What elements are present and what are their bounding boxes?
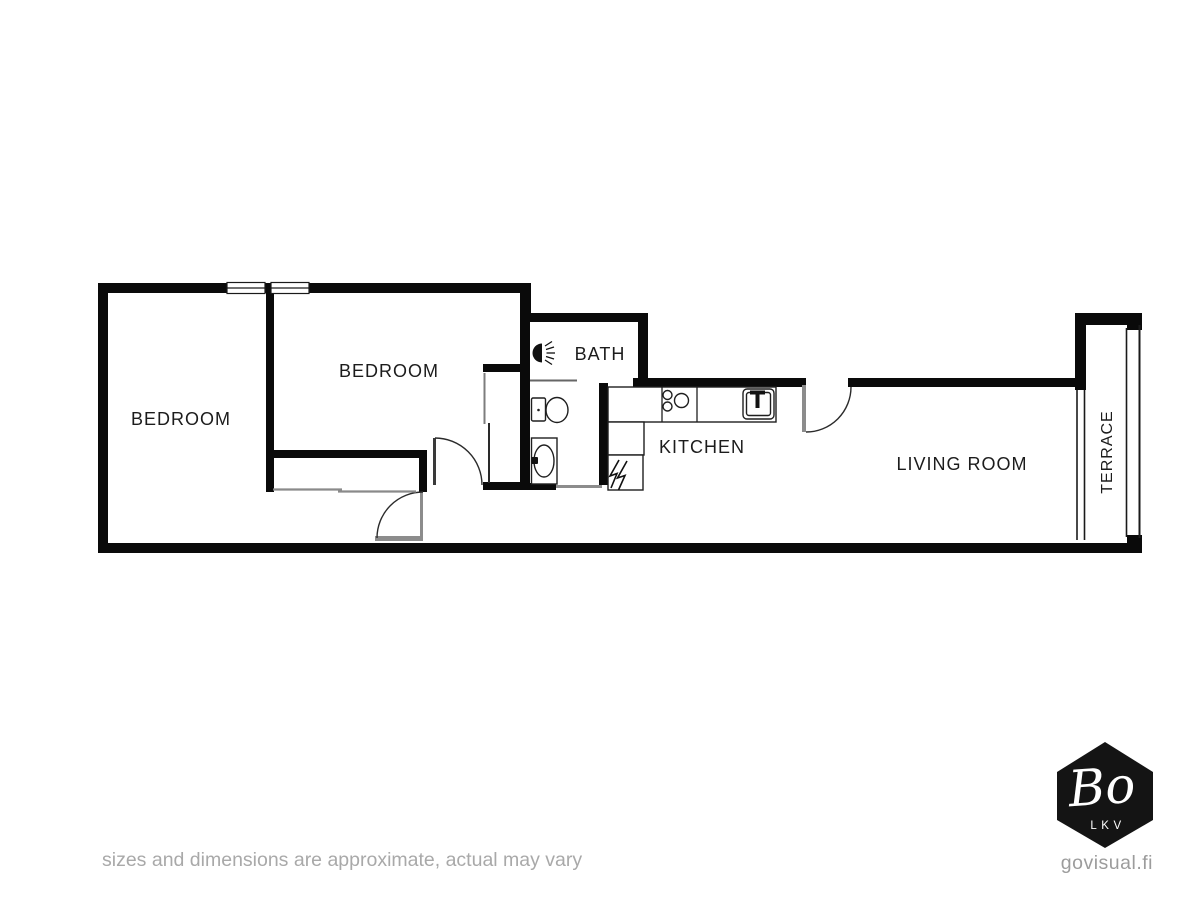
room-label-terrace: TERRACE <box>1099 410 1116 493</box>
entry-door-threshold <box>375 536 423 541</box>
room-label-bedroom-1: BEDROOM <box>131 409 231 429</box>
disclaimer-text: sizes and dimensions are approximate, ac… <box>102 849 582 871</box>
website-text: govisual.fi <box>1061 852 1153 874</box>
bedroom2-door-leaf <box>433 438 436 485</box>
room-label-living-room: LIVING ROOM <box>896 454 1027 474</box>
entry-door <box>375 492 423 541</box>
entry-door-arc <box>377 492 423 538</box>
terrace-railing <box>1127 325 1140 538</box>
bath-fixtures <box>530 342 577 485</box>
room-label-bath: BATH <box>575 344 626 364</box>
bedroom2-door-arc <box>435 438 482 485</box>
bedroom2-door <box>433 438 482 485</box>
wall-bedroom-divider <box>266 283 274 492</box>
electrical-panel-icon <box>608 455 643 490</box>
kitchen-sink-icon <box>743 389 774 419</box>
bath-door <box>556 485 602 488</box>
window-terrace-glass <box>1077 390 1085 540</box>
floor-plan: BEDROOM BEDROOM BATH KITCHEN LIVING ROOM… <box>0 0 1200 897</box>
wall-bath-right <box>638 313 648 387</box>
wall-kitchen-left <box>599 383 608 485</box>
room-label-bedroom-2: BEDROOM <box>339 361 439 381</box>
logo-bo-text: Bo <box>1065 756 1137 819</box>
shower-icon <box>533 342 556 365</box>
wall-living-top <box>848 378 1075 387</box>
brand-logo: Bo LKV govisual.fi <box>1057 742 1153 874</box>
wall-bedroom2-bottom <box>266 450 427 458</box>
living-door-arc <box>806 387 851 432</box>
wall-kitchen-top <box>633 378 806 387</box>
sink-icon <box>532 438 558 484</box>
bath-door-threshold <box>556 485 602 488</box>
wall-top-bedrooms <box>98 283 531 293</box>
wall-left <box>98 283 108 553</box>
wall-bedroom2-door-stub <box>419 450 427 492</box>
floor-plan-page: BEDROOM BEDROOM BATH KITCHEN LIVING ROOM… <box>0 0 1200 897</box>
closets <box>273 373 489 492</box>
closet-sliding-doors <box>485 373 490 483</box>
wall-bottom <box>98 543 1142 553</box>
logo-lkv-text: LKV <box>1090 820 1125 832</box>
room-label-kitchen: KITCHEN <box>659 437 745 457</box>
living-door-leaf <box>802 385 806 432</box>
window-bedroom2 <box>271 283 309 294</box>
living-room-door <box>802 385 851 432</box>
wall-living-terrace-divider <box>1075 313 1086 390</box>
hall-closet-sliding-doors <box>273 490 416 492</box>
entry-door-leaf <box>420 492 423 538</box>
wall-bath-top <box>521 313 648 322</box>
toilet-icon <box>532 398 569 423</box>
window-bedroom1 <box>227 283 265 294</box>
wall-hall-bath <box>520 283 530 490</box>
